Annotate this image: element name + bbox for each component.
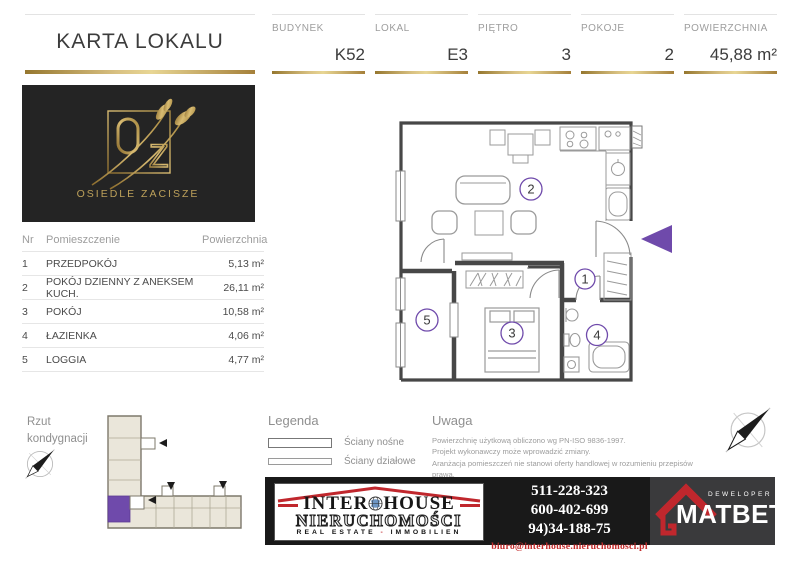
site-plan-map (96, 408, 251, 548)
legend-item-label: Ściany nośne (344, 437, 404, 448)
field-value: E3 (375, 45, 468, 65)
room-nr: 2 (22, 282, 46, 294)
field-top-rule (581, 14, 674, 15)
col-header-name: Pomieszczenie (46, 234, 202, 246)
field-gold-rule (581, 71, 674, 74)
interhouse-subtitle: NIERUCHOMOŚCI (275, 511, 483, 531)
site-plan-title: Rzut kondygnacji (27, 414, 88, 447)
header-field-pokoje: POKOJE 2 (581, 14, 674, 74)
tagline-left: REAL ESTATE (297, 529, 376, 536)
matbet-name: MATBET (676, 499, 785, 530)
floor-plan: 1 2 3 4 5 (378, 93, 680, 410)
site-plan-title-line1: Rzut (27, 414, 88, 431)
tagline-dash: - (376, 529, 391, 536)
legend-item-partition: Ściany działowe (268, 456, 416, 467)
room-number-1: 1 (581, 272, 588, 287)
room-name: POKÓJ (46, 306, 202, 318)
room-nr: 1 (22, 258, 46, 270)
estate-logo-box: Z OSIEDLE ZACISZE (22, 85, 255, 222)
legend: Legenda Ściany nośne Ściany działowe (268, 413, 416, 475)
legend-item-label: Ściany działowe (344, 456, 416, 467)
compass-icon (22, 446, 58, 482)
card-title-block: KARTA LOKALU (25, 14, 255, 74)
room-area: 10,58 m² (202, 306, 264, 318)
room-number-3: 3 (508, 326, 515, 341)
highlighted-unit (108, 496, 130, 522)
room-nr: 5 (22, 354, 46, 366)
room-area: 26,11 m² (202, 282, 264, 294)
notice-line: Projekt wykonawczy może wprowadzić zmian… (432, 446, 702, 457)
header-field-pietro: PIĘTRO 3 (478, 14, 571, 74)
partition-wall-swatch-icon (268, 458, 332, 465)
site-plan-compass (22, 446, 58, 487)
field-gold-rule (684, 71, 777, 74)
field-label: POKOJE (581, 23, 674, 34)
contact-block: 511-228-323 600-402-699 94)34-188-75 biu… (487, 482, 652, 554)
estate-name: OSIEDLE ZACISZE (77, 188, 200, 200)
field-label: PIĘTRO (478, 23, 571, 34)
load-bearing-wall-swatch-icon (268, 438, 332, 448)
interhouse-logo: INTERHOUSE NIERUCHOMOŚCI REAL ESTATE - I… (274, 483, 484, 541)
field-value: 45,88 m² (684, 45, 777, 65)
email-address: biuro@interhouse.nieruchomosci.pl (487, 541, 652, 553)
apartment-card: KARTA LOKALU BUDYNEK K52 LOKAL E3 PIĘTRO… (0, 0, 800, 565)
osiedle-zacisze-logo-icon: Z OSIEDLE ZACISZE (22, 85, 255, 222)
room-area: 5,13 m² (202, 258, 264, 270)
field-gold-rule (272, 71, 365, 74)
tagline-right: IMMOBILIEN (391, 529, 462, 536)
phone-number: 94)34-188-75 (487, 520, 652, 539)
field-top-rule (684, 14, 777, 15)
room-name: ŁAZIENKA (46, 330, 202, 342)
matbet-developer-label: DEWELOPER (708, 491, 772, 498)
legend-item-load-bearing: Ściany nośne (268, 437, 416, 448)
table-row: 5 LOGGIA 4,77 m² (22, 348, 264, 372)
plan-compass (722, 404, 774, 461)
field-value: K52 (272, 45, 365, 65)
globe-icon (368, 496, 383, 511)
room-name: PRZEDPOKÓJ (46, 258, 202, 270)
field-gold-rule (375, 71, 468, 74)
building-outline-icon (96, 408, 251, 543)
table-row: 2 POKÓJ DZIENNY Z ANEKSEM KUCH. 26,11 m² (22, 276, 264, 300)
room-number-4: 4 (593, 328, 600, 343)
room-area: 4,77 m² (202, 354, 264, 366)
floor-plan-drawing-icon: 1 2 3 4 5 (378, 93, 680, 405)
room-nr: 3 (22, 306, 46, 318)
field-value: 3 (478, 45, 571, 65)
site-plan-title-line2: kondygnacji (27, 431, 88, 448)
title-gold-rule (25, 70, 255, 74)
room-nr: 4 (22, 330, 46, 342)
header-field-powierzchnia: POWIERZCHNIA 45,88 m² (684, 14, 777, 74)
col-header-nr: Nr (22, 234, 46, 246)
page-title: KARTA LOKALU (25, 30, 255, 54)
field-value: 2 (581, 45, 674, 65)
field-label: POWIERZCHNIA (684, 23, 777, 34)
phone-number: 600-402-699 (487, 501, 652, 520)
room-number-5: 5 (423, 313, 430, 328)
rooms-table: Nr Pomieszczenie Powierzchnia 1 PRZEDPOK… (22, 228, 264, 372)
field-label: LOKAL (375, 23, 468, 34)
notice-line: Powierzchnię użytkową obliczono wg PN-IS… (432, 435, 702, 446)
room-name: LOGGIA (46, 354, 202, 366)
room-name: POKÓJ DZIENNY Z ANEKSEM KUCH. (46, 276, 202, 300)
header-field-budynek: BUDYNEK K52 (272, 14, 365, 74)
table-row: 1 PRZEDPOKÓJ 5,13 m² (22, 252, 264, 276)
header-field-lokal: LOKAL E3 (375, 14, 468, 74)
interhouse-tagline: REAL ESTATE - IMMOBILIEN (275, 529, 483, 536)
title-top-rule (25, 14, 255, 15)
field-label: BUDYNEK (272, 23, 365, 34)
notice-title: Uwaga (432, 413, 702, 428)
compass-icon (722, 404, 774, 456)
matbet-logo: DEWELOPER MATBET (650, 477, 775, 545)
field-top-rule (478, 14, 571, 15)
entrance-arrow-icon (641, 225, 672, 253)
field-top-rule (375, 14, 468, 15)
table-row: 4 ŁAZIENKA 4,06 m² (22, 324, 264, 348)
footer-bar: INTERHOUSE NIERUCHOMOŚCI REAL ESTATE - I… (265, 477, 775, 545)
legend-title: Legenda (268, 413, 416, 428)
col-header-area: Powierzchnia (202, 234, 264, 246)
table-row: 3 POKÓJ 10,58 m² (22, 300, 264, 324)
field-top-rule (272, 14, 365, 15)
room-number-2: 2 (527, 182, 534, 197)
field-gold-rule (478, 71, 571, 74)
rooms-table-header: Nr Pomieszczenie Powierzchnia (22, 228, 264, 252)
phone-number: 511-228-323 (487, 482, 652, 501)
room-area: 4,06 m² (202, 330, 264, 342)
